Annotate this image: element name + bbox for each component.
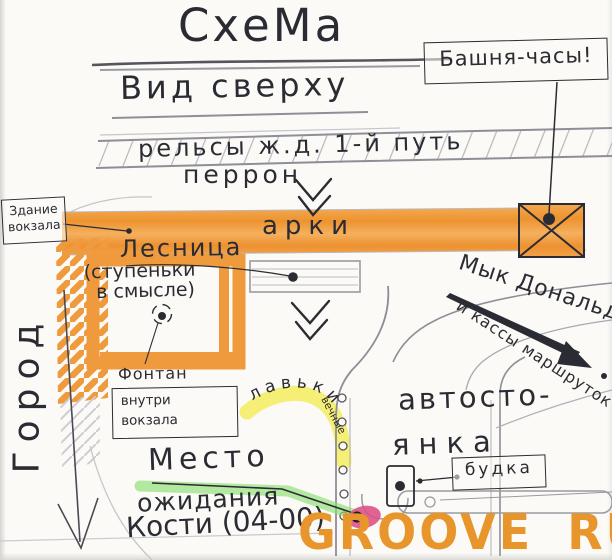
clock-tower-square <box>519 82 584 257</box>
station-building-box: Здание вокзала <box>1 196 67 244</box>
fountain-label-box: внутри вокзала <box>112 386 239 439</box>
meeting-spot-line1: Место <box>147 441 270 477</box>
platform-edge-line <box>70 197 152 212</box>
hand-drawn-station-map: лавьки вечные СхеМа Вид сверху Башня-час… <box>0 0 612 560</box>
clock-tower-label-box: Башня-часы! <box>423 38 608 85</box>
parking-label-line2: янка <box>392 426 501 460</box>
stairs-note: (ступеньки в смысле) <box>83 261 196 304</box>
fountain-box-line1: внутри <box>121 392 171 409</box>
station-box-line1: Здание <box>9 201 58 219</box>
page-title: СхеМа <box>178 2 345 49</box>
pencil-hatch <box>60 396 100 467</box>
fountain-label: Фонтан <box>118 365 188 383</box>
fountain-box-line2: вокзала <box>121 412 178 429</box>
watermark-groove: GROOVE <box>298 507 533 558</box>
booth-label-box: будка <box>451 454 546 490</box>
station-box-line2: вокзала <box>8 217 61 235</box>
fountain-dot <box>158 312 166 320</box>
watermark-ru: RU <box>567 507 612 558</box>
down-arrow-icon <box>292 301 329 339</box>
stairs-note-line2: в смысле) <box>96 279 195 304</box>
watermark: GROOVE RU <box>298 507 612 558</box>
view-subtitle: Вид сверху <box>120 68 350 106</box>
platform-label: перрон <box>183 162 302 188</box>
arches-label: арки <box>262 213 355 240</box>
parking-label-line1: автосто- <box>398 379 554 415</box>
city-label: Город <box>9 302 53 487</box>
